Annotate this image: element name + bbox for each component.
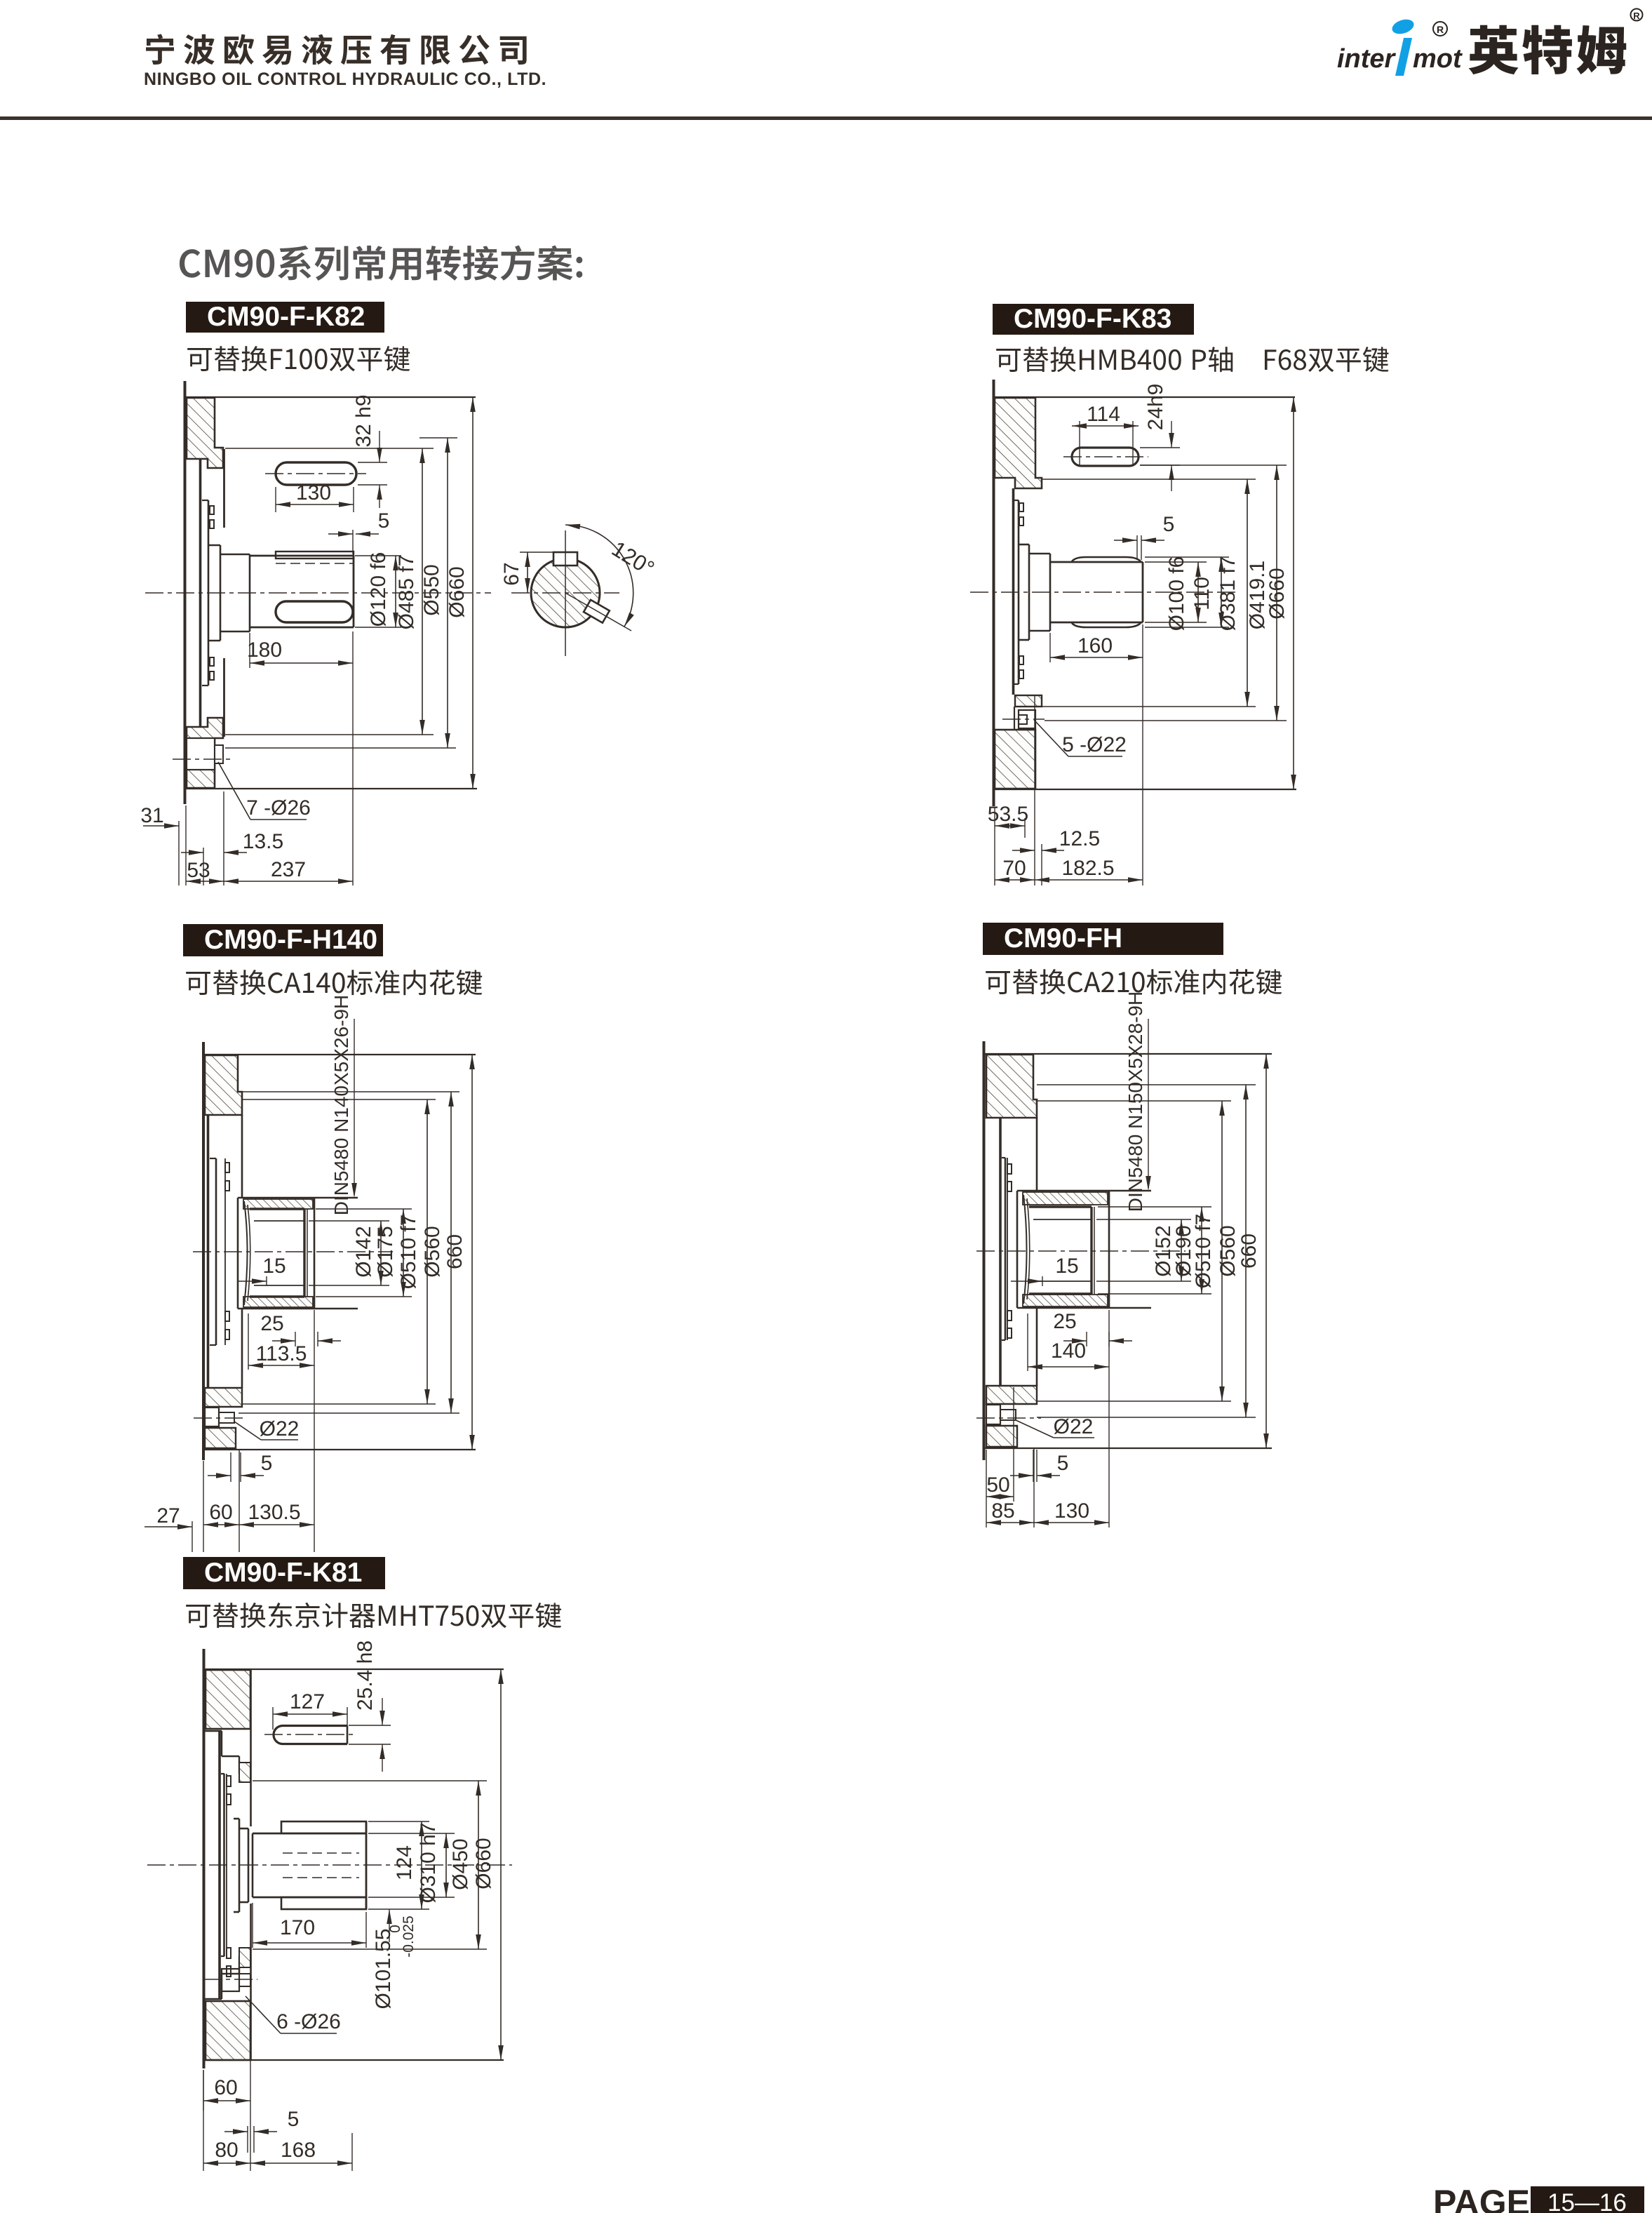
svg-text:Ø310 h7: Ø310 h7 <box>417 1822 440 1903</box>
svg-text:Ø120 f6: Ø120 f6 <box>367 552 390 627</box>
svg-text:Ø560: Ø560 <box>421 1226 444 1277</box>
svg-text:110: 110 <box>1190 577 1214 610</box>
svg-text:180: 180 <box>247 639 282 662</box>
svg-text:70: 70 <box>1002 857 1026 880</box>
svg-text:Ø450: Ø450 <box>449 1838 472 1890</box>
svg-text:Ø22: Ø22 <box>1054 1415 1094 1438</box>
svg-text:Ø101.55: Ø101.55 <box>372 1928 395 2009</box>
svg-text:-0.025: -0.025 <box>401 1916 417 1958</box>
svg-text:Ø100 f6: Ø100 f6 <box>1165 556 1188 631</box>
svg-text:15: 15 <box>1055 1255 1078 1278</box>
svg-text:140: 140 <box>1051 1339 1086 1363</box>
svg-text:120°: 120° <box>607 536 659 581</box>
svg-text:50: 50 <box>986 1473 1009 1497</box>
svg-text:6 -Ø26: 6 -Ø26 <box>276 2010 341 2033</box>
svg-text:Ø660: Ø660 <box>472 1838 495 1889</box>
svg-text:60: 60 <box>214 2076 237 2099</box>
svg-text:5: 5 <box>1163 513 1175 536</box>
svg-text:160: 160 <box>1077 634 1113 657</box>
svg-text:5: 5 <box>378 509 390 533</box>
svg-text:25: 25 <box>1053 1310 1076 1333</box>
svg-text:DIN5480 N140X5X26-9H: DIN5480 N140X5X26-9H <box>330 995 352 1215</box>
svg-text:53: 53 <box>187 859 210 882</box>
svg-text:Ø510 f7: Ø510 f7 <box>1192 1214 1215 1289</box>
svg-text:Ø660: Ø660 <box>445 566 469 617</box>
svg-text:Ø142: Ø142 <box>352 1226 375 1277</box>
svg-text:13.5: 13.5 <box>243 830 283 853</box>
svg-text:7 -Ø26: 7 -Ø26 <box>246 796 311 820</box>
svg-text:127: 127 <box>290 1690 325 1713</box>
svg-text:60: 60 <box>209 1501 232 1524</box>
svg-text:124: 124 <box>393 1845 416 1880</box>
svg-text:5 -Ø22: 5 -Ø22 <box>1062 733 1127 756</box>
svg-text:53.5: 53.5 <box>988 803 1028 826</box>
svg-text:130.5: 130.5 <box>248 1501 300 1524</box>
svg-text:114: 114 <box>1087 403 1120 426</box>
svg-text:660: 660 <box>1237 1233 1261 1269</box>
svg-text:DIN5480 N150X5X28-9H: DIN5480 N150X5X28-9H <box>1124 991 1146 1212</box>
svg-text:660: 660 <box>443 1234 466 1269</box>
svg-text:Ø381 f7: Ø381 f7 <box>1216 556 1240 631</box>
svg-text:67: 67 <box>500 562 523 585</box>
svg-text:Ø485 f7: Ø485 f7 <box>395 555 418 630</box>
svg-text:Ø550: Ø550 <box>420 564 443 615</box>
svg-text:80: 80 <box>215 2139 238 2162</box>
svg-text:113.5: 113.5 <box>256 1342 307 1365</box>
svg-text:Ø175: Ø175 <box>374 1226 397 1277</box>
svg-text:31: 31 <box>140 804 163 827</box>
svg-text:237: 237 <box>271 858 306 881</box>
svg-text:168: 168 <box>281 2139 316 2162</box>
svg-text:Ø560: Ø560 <box>1216 1225 1240 1276</box>
svg-text:182.5: 182.5 <box>1061 857 1114 880</box>
svg-text:130: 130 <box>296 481 331 504</box>
svg-text:130: 130 <box>1054 1499 1089 1523</box>
svg-text:Ø510 f7: Ø510 f7 <box>397 1215 420 1290</box>
svg-text:5: 5 <box>288 2108 300 2131</box>
svg-text:24h9: 24h9 <box>1144 384 1167 431</box>
svg-text:Ø660: Ø660 <box>1265 568 1289 619</box>
svg-text:15: 15 <box>262 1255 286 1278</box>
svg-text:25: 25 <box>260 1312 283 1335</box>
svg-text:27: 27 <box>156 1504 180 1527</box>
svg-text:25.4 h8: 25.4 h8 <box>354 1640 377 1711</box>
svg-text:12.5: 12.5 <box>1059 827 1100 850</box>
svg-text:32 h9: 32 h9 <box>352 394 375 447</box>
svg-text:85: 85 <box>991 1499 1014 1523</box>
svg-text:170: 170 <box>280 1916 315 1939</box>
svg-text:Ø22: Ø22 <box>260 1417 300 1440</box>
svg-text:5: 5 <box>261 1452 273 1475</box>
svg-text:5: 5 <box>1057 1452 1069 1475</box>
